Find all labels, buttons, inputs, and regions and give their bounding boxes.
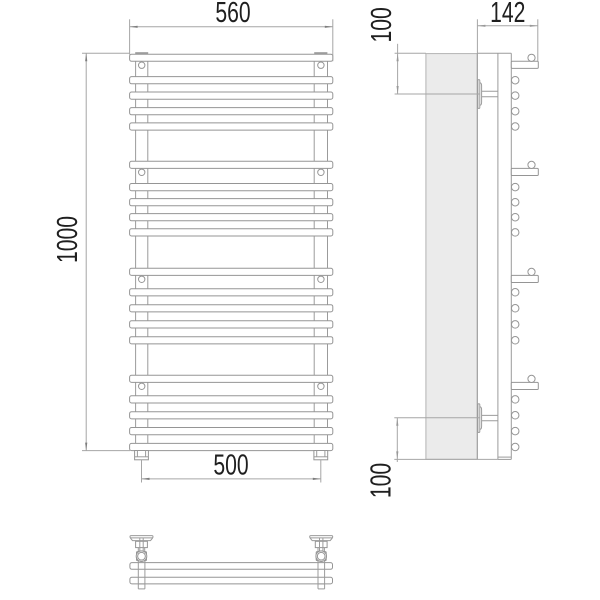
svg-text:560: 560 xyxy=(215,0,250,29)
svg-text:100: 100 xyxy=(366,7,398,42)
svg-text:100: 100 xyxy=(366,463,398,498)
svg-text:142: 142 xyxy=(490,0,525,29)
svg-text:1000: 1000 xyxy=(52,216,84,263)
svg-text:500: 500 xyxy=(213,449,248,481)
